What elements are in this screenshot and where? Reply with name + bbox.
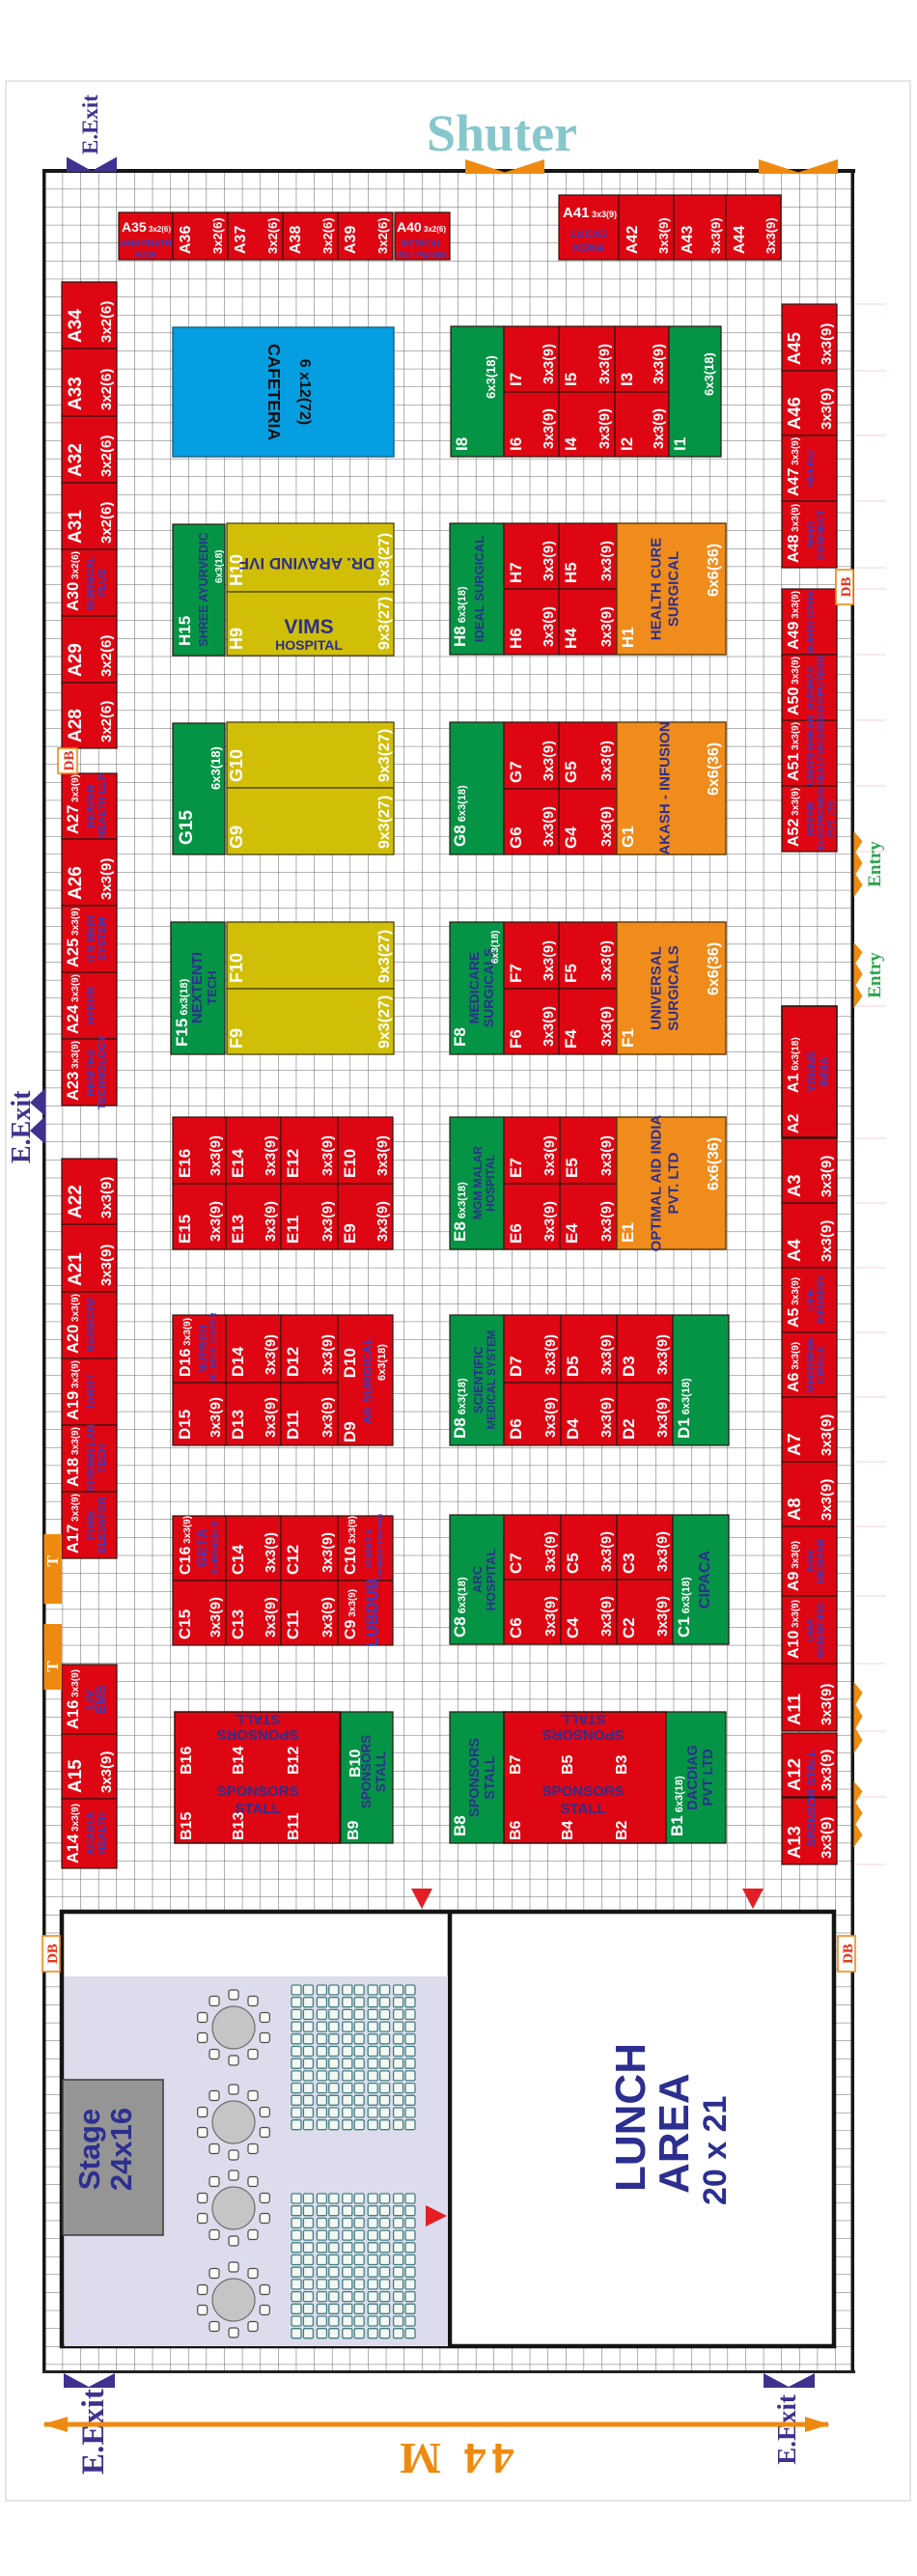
svg-text:3x3(9): 3x3(9): [208, 1201, 224, 1242]
svg-text:NASSCOM: NASSCOM: [86, 1298, 97, 1352]
svg-text:D6: D6: [507, 1418, 525, 1440]
svg-text:3x3(9): 3x3(9): [264, 1597, 279, 1638]
svg-text:BEAVER: BEAVER: [86, 784, 97, 827]
svg-text:WELNESS CENTER: WELNESS CENTER: [209, 1312, 218, 1385]
svg-text:F8: F8: [451, 1027, 469, 1047]
svg-text:3x3(9): 3x3(9): [652, 344, 667, 384]
svg-text:9x3(27): 9x3(27): [376, 597, 393, 650]
svg-text:SURGICAL: SURGICAL: [666, 551, 682, 627]
svg-text:DACDIAG: DACDIAG: [685, 1745, 701, 1810]
svg-text:MOHAMED TRADING: MOHAMED TRADING: [377, 1513, 384, 1582]
svg-text:INST MEAGIA: INST MEAGIA: [397, 250, 448, 259]
svg-text:AREA: AREA: [651, 2073, 698, 2194]
svg-text:F1: F1: [619, 1028, 637, 1048]
svg-text:6x6(36): 6x6(36): [706, 544, 722, 597]
svg-text:B13: B13: [231, 1812, 247, 1840]
svg-text:CAFETERIA: CAFETERIA: [264, 344, 284, 441]
svg-text:Stage: Stage: [72, 2109, 106, 2190]
svg-text:YOUNG: YOUNG: [807, 1051, 819, 1092]
svg-text:PLUS: PLUS: [97, 569, 108, 597]
svg-text:3x3(9): 3x3(9): [320, 1597, 336, 1638]
svg-text:A29: A29: [66, 643, 86, 677]
svg-text:3x3(9): 3x3(9): [599, 1135, 615, 1176]
svg-text:B4: B4: [560, 1820, 576, 1840]
svg-text:E15: E15: [176, 1215, 194, 1244]
svg-text:3x2(6): 3x2(6): [265, 217, 280, 254]
svg-text:SCIENTIFIC: SCIENTIFIC: [816, 1601, 827, 1658]
svg-text:E10: E10: [341, 1149, 359, 1178]
svg-text:3x3(9): 3x3(9): [599, 1596, 615, 1637]
svg-text:STROBILLAN: STROBILLAN: [86, 1424, 97, 1493]
svg-text:MEDICAL SYSTEM: MEDICAL SYSTEM: [486, 1330, 498, 1430]
svg-text:A38: A38: [288, 226, 304, 254]
svg-text:E1: E1: [619, 1222, 637, 1243]
svg-text:3x3(9): 3x3(9): [819, 1817, 835, 1859]
svg-text:A39: A39: [343, 226, 359, 254]
svg-text:3x3(9): 3x3(9): [320, 1532, 336, 1573]
svg-text:A7: A7: [784, 1433, 804, 1456]
svg-text:3x3(9): 3x3(9): [320, 1135, 336, 1176]
svg-text:3x3(9): 3x3(9): [655, 1397, 671, 1438]
svg-text:6x6(36): 6x6(36): [706, 742, 722, 796]
svg-text:3x3(9): 3x3(9): [819, 1684, 835, 1725]
svg-text:D2: D2: [620, 1418, 638, 1440]
svg-text:I4: I4: [562, 436, 580, 451]
svg-text:A37: A37: [233, 226, 249, 254]
svg-text:PVT. LTD: PVT. LTD: [666, 1152, 682, 1214]
svg-text:F7: F7: [507, 964, 525, 983]
svg-text:3x3(9): 3x3(9): [597, 344, 613, 384]
svg-text:I3: I3: [618, 373, 636, 386]
svg-text:SPONSORS: SPONSORS: [542, 1726, 624, 1743]
svg-text:H6: H6: [507, 628, 525, 649]
svg-text:3x3(9): 3x3(9): [542, 1006, 557, 1047]
svg-text:3x3(9): 3x3(9): [542, 741, 557, 781]
svg-text:HOSPITAL: HOSPITAL: [484, 1154, 497, 1212]
svg-text:E13: E13: [229, 1215, 247, 1244]
svg-text:SCIENTIFIC: SCIENTIFIC: [472, 1346, 486, 1413]
svg-text:F6: F6: [507, 1029, 525, 1049]
svg-text:HEALTH LLP: HEALTH LLP: [97, 773, 108, 839]
svg-text:GETA: GETA: [194, 1528, 210, 1568]
svg-text:6x3(18): 6x3(18): [484, 355, 498, 399]
svg-text:D10: D10: [341, 1348, 359, 1378]
svg-text:C5: C5: [564, 1553, 582, 1574]
svg-text:B2: B2: [614, 1820, 630, 1840]
svg-text:PVT LTD: PVT LTD: [701, 1749, 716, 1806]
svg-text:3x3(9): 3x3(9): [655, 1531, 671, 1572]
svg-text:B16: B16: [179, 1747, 195, 1775]
svg-text:SPONSORS: SPONSORS: [216, 1726, 298, 1743]
svg-text:H9: H9: [227, 628, 246, 650]
svg-text:ELEVATOR: ELEVATOR: [97, 1497, 108, 1553]
svg-text:3x3(9): 3x3(9): [599, 1397, 615, 1438]
svg-text:HEALTHCARE: HEALTHCARE: [816, 718, 827, 788]
svg-text:3x3(9): 3x3(9): [655, 1596, 671, 1637]
svg-text:6x6(36): 6x6(36): [706, 942, 722, 995]
svg-text:6x3(18): 6x3(18): [376, 1344, 388, 1381]
svg-text:3x3(9): 3x3(9): [264, 1135, 279, 1176]
svg-text:C14: C14: [229, 1544, 247, 1575]
svg-text:OPTIMAL AID INDIA: OPTIMAL AID INDIA: [649, 1115, 665, 1252]
svg-text:CIPACA: CIPACA: [697, 1550, 713, 1609]
svg-text:3x3(9): 3x3(9): [320, 1334, 336, 1375]
svg-text:SURGICALS: SURGICALS: [666, 945, 682, 1030]
svg-text:A15: A15: [66, 1759, 86, 1793]
svg-text:B15: B15: [179, 1812, 195, 1840]
svg-text:B3: B3: [614, 1754, 630, 1775]
svg-text:A26: A26: [66, 866, 86, 900]
svg-text:3x3(9): 3x3(9): [264, 1397, 279, 1438]
svg-text:DB: DB: [841, 1944, 856, 1964]
svg-text:3x3(9): 3x3(9): [264, 1532, 279, 1573]
svg-text:3x3(9): 3x3(9): [264, 1201, 279, 1242]
svg-text:G4: G4: [562, 826, 580, 849]
svg-text:TECH: TECH: [205, 970, 219, 1004]
svg-text:SURGICALS: SURGICALS: [210, 1521, 221, 1575]
svg-text:A12: A12: [784, 1758, 804, 1791]
svg-text:TECH: TECH: [97, 1443, 108, 1472]
svg-text:SPONSORS: SPONSORS: [359, 1735, 374, 1809]
svg-text:RENITHA: RENITHA: [86, 1049, 97, 1096]
svg-text:Entry: Entry: [865, 841, 885, 887]
svg-text:3x3(9): 3x3(9): [819, 1156, 835, 1197]
svg-text:I5: I5: [562, 373, 580, 386]
svg-text:A44: A44: [732, 226, 748, 254]
svg-text:STALL: STALL: [235, 1711, 280, 1727]
svg-text:B12: B12: [286, 1747, 302, 1775]
svg-text:F4: F4: [562, 1029, 580, 1049]
svg-text:3x3(9): 3x3(9): [542, 1201, 558, 1242]
svg-text:H15: H15: [176, 616, 194, 646]
svg-text:3x2(6): 3x2(6): [98, 701, 115, 742]
svg-text:T: T: [43, 1661, 62, 1672]
svg-text:G9: G9: [227, 826, 246, 849]
svg-text:3x2(6): 3x2(6): [98, 635, 115, 677]
svg-text:9x3(27): 9x3(27): [376, 729, 393, 782]
svg-text:6 x12(72): 6 x12(72): [296, 359, 313, 426]
svg-text:6x3(18): 6x3(18): [214, 550, 225, 583]
svg-text:3x3(9): 3x3(9): [542, 408, 557, 449]
svg-text:A11: A11: [784, 1694, 804, 1725]
svg-text:DB: DB: [62, 751, 77, 771]
svg-text:SURGI CARE: SURGI CARE: [805, 590, 817, 654]
svg-text:3x3(9): 3x3(9): [599, 806, 615, 847]
svg-text:3x3(9): 3x3(9): [264, 1334, 279, 1375]
svg-text:HEALTH CURE: HEALTH CURE: [649, 538, 665, 640]
svg-text:HOSPITAL: HOSPITAL: [275, 637, 343, 653]
svg-text:DB: DB: [839, 577, 854, 598]
svg-text:E.Exit: E.Exit: [76, 2389, 111, 2475]
svg-text:3x3(9): 3x3(9): [652, 408, 667, 449]
svg-text:LUCAS: LUCAS: [570, 229, 607, 240]
svg-text:NONA: NONA: [573, 242, 604, 254]
svg-text:U S MEDI: U S MEDI: [86, 915, 97, 963]
svg-text:3x3(9): 3x3(9): [543, 1334, 559, 1375]
svg-text:SPONSORS: SPONSORS: [216, 1783, 298, 1800]
svg-text:E.Exit: E.Exit: [7, 1090, 37, 1163]
svg-text:A13: A13: [784, 1826, 804, 1859]
svg-text:I1: I1: [671, 437, 689, 451]
svg-text:D11: D11: [284, 1411, 302, 1440]
svg-text:A33: A33: [66, 377, 86, 410]
svg-text:T: T: [43, 1555, 62, 1567]
svg-text:3x3(9): 3x3(9): [98, 1751, 115, 1793]
svg-text:E6: E6: [507, 1223, 525, 1244]
svg-text:3x3(9): 3x3(9): [98, 1177, 115, 1218]
svg-text:STALL: STALL: [374, 1751, 388, 1793]
svg-text:3x3(9): 3x3(9): [656, 217, 671, 254]
svg-text:SPONSOR STALL: SPONSOR STALL: [805, 1749, 819, 1846]
svg-text:HYKON: HYKON: [86, 987, 97, 1025]
svg-text:3x3(9): 3x3(9): [819, 323, 835, 365]
svg-text:3x3(9): 3x3(9): [599, 1334, 615, 1375]
svg-text:C15: C15: [176, 1610, 194, 1639]
svg-text:STALL: STALL: [483, 1755, 498, 1800]
svg-text:B6: B6: [508, 1820, 524, 1840]
svg-text:E7: E7: [507, 1158, 525, 1178]
svg-text:3x3(9): 3x3(9): [709, 217, 723, 254]
svg-text:F5: F5: [562, 964, 580, 983]
svg-text:A31: A31: [66, 510, 86, 544]
svg-text:UNIVERSAL: UNIVERSAL: [649, 946, 665, 1030]
svg-text:3x2(6): 3x2(6): [98, 435, 115, 477]
svg-text:3x3(9): 3x3(9): [599, 1006, 615, 1047]
svg-text:SPONSORS: SPONSORS: [467, 1738, 483, 1818]
svg-text:LUBDUB: LUBDUB: [363, 1578, 381, 1647]
svg-text:SHREE AYURVEDIC: SHREE AYURVEDIC: [197, 532, 210, 646]
svg-text:A21: A21: [66, 1252, 86, 1286]
svg-text:3x3(9): 3x3(9): [543, 1397, 559, 1438]
svg-text:3x3(9): 3x3(9): [819, 1414, 835, 1456]
svg-text:NULINZ: NULINZ: [805, 449, 817, 487]
svg-text:G1: G1: [619, 826, 637, 848]
svg-text:DB: DB: [45, 1944, 61, 1964]
svg-text:3x3(9): 3x3(9): [208, 1397, 224, 1438]
svg-text:EMS: EMS: [94, 1685, 108, 1713]
svg-text:HEALTH: HEALTH: [97, 1812, 108, 1855]
svg-text:3x3(9): 3x3(9): [208, 1597, 224, 1638]
svg-text:ELECTRONICS: ELECTRONICS: [817, 788, 826, 851]
svg-text:A42: A42: [625, 226, 641, 254]
svg-text:E14: E14: [229, 1148, 247, 1178]
svg-text:A36: A36: [178, 226, 194, 254]
svg-text:A45: A45: [784, 332, 804, 365]
svg-text:A34: A34: [66, 309, 86, 343]
svg-text:3x3(9): 3x3(9): [98, 858, 115, 900]
svg-text:3x3(9): 3x3(9): [542, 344, 557, 384]
svg-text:3x2(6): 3x2(6): [320, 217, 335, 254]
svg-text:VIMS: VIMS: [284, 616, 333, 638]
svg-text:CONNECT: CONNECT: [816, 509, 827, 560]
svg-text:3x2(6): 3x2(6): [375, 217, 390, 254]
svg-text:C7: C7: [507, 1553, 525, 1574]
svg-text:3x3(9): 3x3(9): [543, 1596, 559, 1637]
svg-text:3x3(9): 3x3(9): [599, 606, 615, 647]
svg-text:6x6(36): 6x6(36): [706, 1137, 722, 1190]
svg-text:MEDICARE: MEDICARE: [466, 952, 482, 1024]
svg-text:D5: D5: [564, 1356, 582, 1377]
svg-text:A46: A46: [784, 397, 804, 430]
svg-text:B14: B14: [231, 1747, 247, 1775]
svg-text:INFUSION: INFUSION: [816, 1275, 827, 1324]
svg-text:G5: G5: [562, 761, 580, 783]
svg-text:B8: B8: [451, 1815, 469, 1836]
svg-text:I8: I8: [453, 437, 471, 451]
svg-text:A28: A28: [66, 709, 86, 742]
svg-text:SYSTEM: SYSTEM: [97, 917, 108, 961]
svg-text:3x3(9): 3x3(9): [542, 606, 557, 647]
svg-text:COMPUTERS: COMPUTERS: [816, 655, 827, 719]
svg-text:3x3(9): 3x3(9): [655, 1334, 671, 1375]
svg-text:E12: E12: [284, 1149, 302, 1178]
svg-text:3x3(9): 3x3(9): [98, 1245, 115, 1286]
svg-text:D12: D12: [284, 1347, 302, 1377]
svg-text:E5: E5: [563, 1158, 581, 1178]
svg-text:6x3(18): 6x3(18): [208, 746, 223, 790]
svg-text:NEXTENTI: NEXTENTI: [189, 952, 206, 1023]
svg-text:CIRCLE: CIRCLE: [816, 1346, 827, 1384]
svg-text:AKASH - INFUSION: AKASH - INFUSION: [657, 721, 674, 854]
svg-text:24x16: 24x16: [104, 2108, 138, 2191]
svg-text:9x3(27): 9x3(27): [376, 930, 393, 983]
svg-text:A4: A4: [784, 1239, 804, 1262]
svg-text:H4: H4: [562, 628, 580, 649]
svg-text:KUMAR &: KUMAR &: [364, 1528, 374, 1567]
svg-text:A3: A3: [784, 1174, 804, 1197]
svg-text:3x3(9): 3x3(9): [819, 1750, 835, 1791]
svg-text:G10: G10: [227, 749, 246, 782]
svg-text:3x3(9): 3x3(9): [543, 1531, 559, 1572]
svg-text:INDIA: INDIA: [820, 1056, 831, 1086]
svg-text:6x3(18): 6x3(18): [490, 931, 501, 964]
svg-text:MEDIFAB: MEDIFAB: [816, 1538, 827, 1584]
svg-text:9x3(27): 9x3(27): [376, 533, 393, 586]
svg-text:AMARNATH: AMARNATH: [120, 238, 172, 249]
svg-text:3x3(9): 3x3(9): [208, 1135, 224, 1176]
svg-text:IDEAL SURGICAL: IDEAL SURGICAL: [472, 536, 486, 642]
svg-text:E9: E9: [341, 1223, 359, 1244]
svg-text:E.Exit: E.Exit: [78, 95, 102, 154]
svg-text:C12: C12: [284, 1545, 302, 1575]
svg-text:C2: C2: [620, 1617, 638, 1638]
svg-text:AK SURGICAL: AK SURGICAL: [360, 1337, 375, 1424]
svg-text:3x3(9): 3x3(9): [320, 1397, 336, 1438]
svg-text:CUBE: CUBE: [86, 1510, 97, 1540]
svg-text:D15: D15: [176, 1410, 194, 1440]
svg-text:H5: H5: [562, 562, 580, 583]
svg-text:B7: B7: [508, 1754, 524, 1775]
svg-text:AYUR: AYUR: [135, 250, 156, 259]
svg-text:44 M: 44 M: [394, 2434, 514, 2483]
svg-text:B9: B9: [346, 1820, 362, 1840]
svg-text:D7: D7: [507, 1356, 525, 1377]
svg-text:20 x 21: 20 x 21: [697, 2096, 734, 2205]
svg-text:3x3(9): 3x3(9): [542, 1135, 558, 1176]
svg-text:3x3(9): 3x3(9): [542, 940, 557, 981]
svg-text:D13: D13: [229, 1410, 247, 1440]
svg-text:G6: G6: [507, 826, 525, 849]
svg-text:D14: D14: [229, 1346, 247, 1377]
svg-text:3x3(9): 3x3(9): [599, 1531, 615, 1572]
svg-text:D3: D3: [620, 1356, 638, 1377]
svg-text:3x3(9): 3x3(9): [375, 1201, 391, 1242]
svg-text:3x3(9): 3x3(9): [819, 1220, 835, 1262]
svg-text:A32: A32: [66, 443, 86, 477]
svg-text:E.Exit: E.Exit: [772, 2394, 801, 2465]
svg-text:STALL: STALL: [560, 1711, 605, 1727]
svg-text:I6: I6: [507, 437, 525, 451]
svg-text:6x3(18): 6x3(18): [702, 352, 716, 396]
svg-text:3x3(9): 3x3(9): [599, 541, 615, 581]
svg-text:TECHNOLOGY: TECHNOLOGY: [97, 1034, 108, 1109]
svg-text:E11: E11: [284, 1216, 302, 1244]
svg-text:ARC: ARC: [470, 1565, 485, 1593]
svg-text:A2: A2: [786, 1113, 802, 1134]
svg-text:3x3(9): 3x3(9): [819, 388, 835, 430]
svg-text:Shuter: Shuter: [427, 104, 577, 162]
svg-text:NUTRICH: NUTRICH: [198, 1325, 209, 1373]
svg-text:MEDICAL: MEDICAL: [401, 238, 442, 249]
svg-text:SPONSORS: SPONSORS: [542, 1783, 624, 1800]
svg-text:MGM MALAR: MGM MALAR: [471, 1146, 485, 1219]
svg-text:C11: C11: [284, 1610, 302, 1639]
svg-text:G7: G7: [507, 761, 525, 783]
svg-text:STALL: STALL: [560, 1801, 605, 1817]
svg-text:3x3(9): 3x3(9): [819, 1479, 835, 1521]
svg-text:A22: A22: [66, 1185, 86, 1218]
svg-text:C13: C13: [229, 1610, 247, 1639]
svg-text:B11: B11: [286, 1812, 302, 1840]
svg-text:LUNCH: LUNCH: [607, 2043, 654, 2192]
svg-text:I2: I2: [618, 437, 636, 451]
svg-text:H7: H7: [507, 562, 525, 583]
svg-text:NORRIS: NORRIS: [806, 801, 816, 835]
svg-text:C6: C6: [507, 1617, 525, 1638]
svg-text:3x3(9): 3x3(9): [597, 408, 613, 449]
svg-text:3x3(9): 3x3(9): [542, 806, 557, 847]
svg-text:D9: D9: [341, 1421, 359, 1442]
svg-text:9x3(27): 9x3(27): [376, 995, 393, 1049]
svg-text:3x3(9): 3x3(9): [375, 1135, 391, 1176]
svg-text:ACASTA: ACASTA: [86, 1811, 97, 1855]
svg-text:E16: E16: [176, 1149, 194, 1178]
svg-text:3x3(9): 3x3(9): [764, 217, 778, 254]
svg-text:3x3(9): 3x3(9): [599, 741, 615, 781]
svg-text:A8: A8: [784, 1498, 804, 1521]
svg-text:3x2(6): 3x2(6): [98, 301, 115, 343]
svg-text:3x2(6): 3x2(6): [210, 217, 225, 254]
svg-text:PVT. LTD: PVT. LTD: [826, 799, 836, 837]
svg-text:3x3(9): 3x3(9): [599, 1201, 615, 1242]
svg-text:C3: C3: [620, 1553, 638, 1574]
svg-text:3x2(6): 3x2(6): [98, 369, 115, 410]
svg-text:F9: F9: [227, 1028, 246, 1049]
svg-text:H1: H1: [619, 627, 637, 648]
svg-text:3x2(6): 3x2(6): [98, 502, 115, 544]
svg-text:9x3(27): 9x3(27): [376, 796, 393, 849]
svg-text:SURGICAL: SURGICAL: [86, 555, 97, 611]
svg-text:E4: E4: [563, 1223, 581, 1244]
svg-text:C4: C4: [564, 1617, 582, 1638]
svg-text:DR. ARAVIND IVF: DR. ARAVIND IVF: [239, 554, 375, 573]
svg-text:D4: D4: [564, 1418, 582, 1440]
svg-text:Entry: Entry: [865, 952, 885, 998]
svg-text:TANOT: TANOT: [86, 1374, 97, 1410]
svg-text:G15: G15: [177, 810, 197, 845]
svg-text:HOSPITAL: HOSPITAL: [484, 1549, 498, 1611]
svg-text:B5: B5: [560, 1754, 576, 1775]
